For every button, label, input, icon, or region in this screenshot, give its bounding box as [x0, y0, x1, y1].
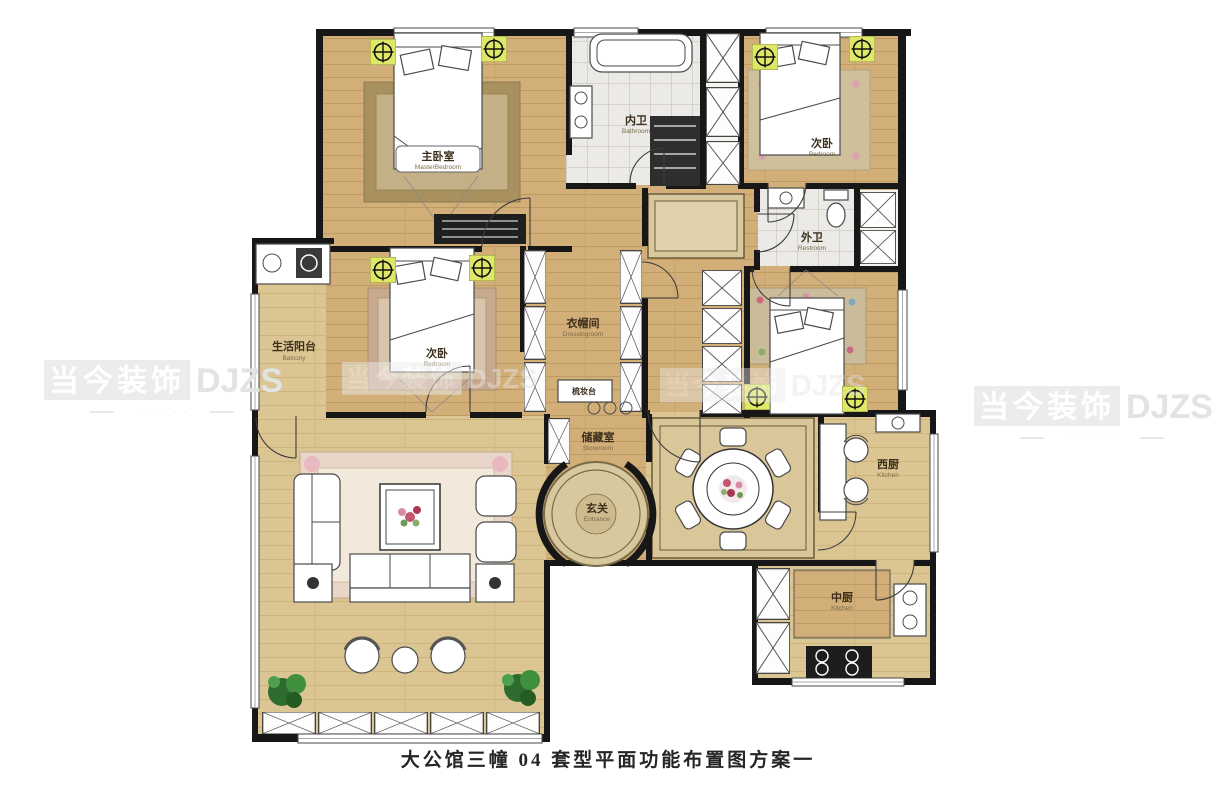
ceiling-lamp-icon [469, 255, 495, 281]
wardrobe-cabinet [620, 251, 641, 304]
ceiling-lamp-icon [849, 36, 875, 62]
washing-machine [296, 248, 322, 278]
balcony-fixtures [256, 244, 330, 284]
ceiling-lamp-icon [481, 36, 507, 62]
dining-chair [720, 428, 746, 446]
rug-corner-flower [492, 456, 508, 472]
wardrobe-cabinet [703, 270, 742, 305]
leaf [413, 520, 420, 527]
window-seat [319, 712, 372, 733]
potted-plant [268, 674, 306, 708]
wardrobe-cabinet [860, 230, 895, 263]
wall-segment [566, 183, 636, 189]
flower [413, 506, 421, 514]
room-label-balcony: 生活阳台 [272, 339, 316, 353]
wall-segment [470, 412, 522, 418]
rug-flower [849, 299, 856, 306]
rug-flower [759, 349, 766, 356]
wall-segment [754, 250, 760, 270]
room-label-outer-bath: 外卫 [800, 230, 823, 244]
bar-counter [820, 424, 846, 520]
floor-plan-drawing: 主卧室 MasterBedroom 内卫 Bathroom 次卧 Bedroom… [0, 0, 1213, 800]
ceiling-lamp-icon [370, 257, 396, 283]
window-seat [487, 712, 540, 733]
watermark-brand-cn: 当今装饰 [664, 371, 781, 401]
label-dressing-table: 梳妆台 [571, 386, 596, 396]
room-sublabel-inner-bath: Bathroom [622, 128, 650, 135]
tea-table [392, 647, 418, 673]
centerpiece-flower [727, 489, 735, 497]
centerpiece-flower [723, 479, 731, 487]
watermark-center-left: 当今装饰 DJZS [342, 362, 538, 395]
master-tv-cabinet [434, 214, 526, 244]
wardrobe-cabinet [706, 142, 739, 185]
wall-segment [642, 188, 648, 246]
rug-flower [757, 297, 764, 304]
ceiling-lamp-icon [752, 44, 778, 70]
toilet-tank [824, 190, 848, 200]
plant-foliage [520, 690, 536, 706]
wardrobe-cabinet [756, 623, 789, 674]
wall-segment [316, 29, 323, 252]
watermark-brand-cn: 当今装饰 [49, 364, 185, 398]
room-sublabel-master: MasterBedroom [415, 164, 461, 171]
watermark-tagline: · · · · · · [136, 407, 189, 417]
room-label-cloakroom: 衣帽间 [567, 316, 600, 330]
room-sublabel-chinese-kitchen: Kitchen [831, 605, 853, 612]
watermark-brand-cn: 当今装饰 [346, 364, 458, 393]
room-label-inner-bath: 内卫 [625, 113, 647, 127]
room-label-west-kitchen: 西厨 [877, 458, 899, 471]
flower [405, 512, 415, 522]
window-seat [375, 712, 428, 733]
room-sublabel-cloakroom: Dressingroom [563, 331, 603, 338]
pillow [438, 46, 471, 71]
room-sublabel-balcony: Balcony [282, 355, 306, 362]
wardrobe-cabinet [706, 34, 739, 83]
room-sublabel-west-kitchen: Kitchen [877, 472, 899, 479]
sink-counter [894, 584, 926, 636]
room-label-storeroom: 储藏室 [582, 430, 615, 444]
bar-stool [844, 478, 868, 502]
leaf [401, 520, 408, 527]
plant-foliage [502, 674, 514, 686]
rug-flower [852, 152, 860, 160]
room-sublabel-storeroom: Storeroom [583, 445, 613, 452]
corridor-carpet [648, 194, 744, 258]
centerpiece-plate [719, 475, 747, 503]
room-label-bedroom-mid: 次卧 [426, 346, 448, 360]
wall-segment [544, 562, 550, 742]
rug-flower [847, 347, 854, 354]
wall-segment [854, 186, 860, 266]
wardrobe-cabinet [860, 192, 895, 227]
centerpiece-flower [736, 482, 743, 489]
wardrobe-cabinet [706, 88, 739, 137]
rug-flower [852, 80, 860, 88]
plant-foliage [520, 670, 540, 690]
wall-segment [898, 29, 906, 274]
centerpiece-leaf [737, 492, 743, 498]
wall-segment [252, 238, 334, 244]
wardrobe-cabinet [620, 307, 641, 360]
room-sublabel-entrance: Entrance [584, 516, 610, 523]
wardrobe-cabinet [524, 251, 545, 304]
watermark-brand-cn: 当今装饰 [979, 390, 1115, 424]
dining-chair [720, 532, 746, 550]
armchair [476, 522, 516, 562]
plant-foliage [286, 692, 302, 708]
sink-counter [570, 86, 592, 138]
stove [806, 646, 872, 678]
flower [398, 508, 406, 516]
watermark-brand-en: DJZS [1126, 388, 1213, 426]
carpet-field [655, 201, 737, 251]
wardrobe-cabinet [524, 307, 545, 360]
plant-foliage [286, 674, 306, 694]
sofa-base [350, 588, 470, 602]
sofa-seat [350, 554, 470, 588]
wardrobe-cabinet [703, 308, 742, 343]
wardrobe-cabinet [756, 569, 789, 620]
room-sublabel-bedroom-tr: Bedroom [809, 151, 835, 158]
table-lamp [307, 577, 319, 589]
watermark-brand-en: DJZS [467, 363, 538, 394]
centerpiece-leaf [721, 489, 727, 495]
bar-stool [844, 438, 868, 462]
ceiling-lamp-icon [370, 39, 396, 65]
watermark-left: 当今装饰 DJZS · · · · · · [44, 360, 283, 417]
watermark-brand-en: DJZS [791, 371, 866, 403]
wall-segment [700, 29, 706, 189]
room-label-master: 主卧室 [422, 149, 455, 163]
room-label-bedroom-tr: 次卧 [811, 136, 833, 150]
wardrobe-cabinet [548, 419, 569, 464]
room-label-entrance: 玄关 [586, 501, 608, 515]
room-label-chinese-kitchen: 中厨 [831, 590, 853, 604]
watermark-brand-en: DJZS [196, 362, 283, 400]
window-seat [263, 712, 316, 733]
table-lamp [489, 577, 501, 589]
toilet-bowl [827, 203, 845, 227]
rug-corner-flower [304, 456, 320, 472]
watermark-tagline: · · · · · · [1066, 433, 1119, 443]
armchair [476, 476, 516, 516]
watermark-center-right: 当今装饰 DJZS [660, 368, 865, 403]
window-seat [431, 712, 484, 733]
wall-segment [754, 186, 760, 212]
floor-plan-page: 主卧室 MasterBedroom 内卫 Bathroom 次卧 Bedroom… [0, 0, 1213, 800]
wall-segment [642, 298, 648, 418]
sink-counter [768, 188, 804, 208]
plan-title: 大公馆三幢 04 套型平面功能布置图方案一 [401, 748, 816, 771]
plant-foliage [268, 676, 280, 688]
room-sublabel-outer-bath: Restroom [798, 245, 826, 252]
watermark-right: 当今装饰 DJZS · · · · · · [974, 386, 1213, 443]
wall-segment [326, 412, 426, 418]
